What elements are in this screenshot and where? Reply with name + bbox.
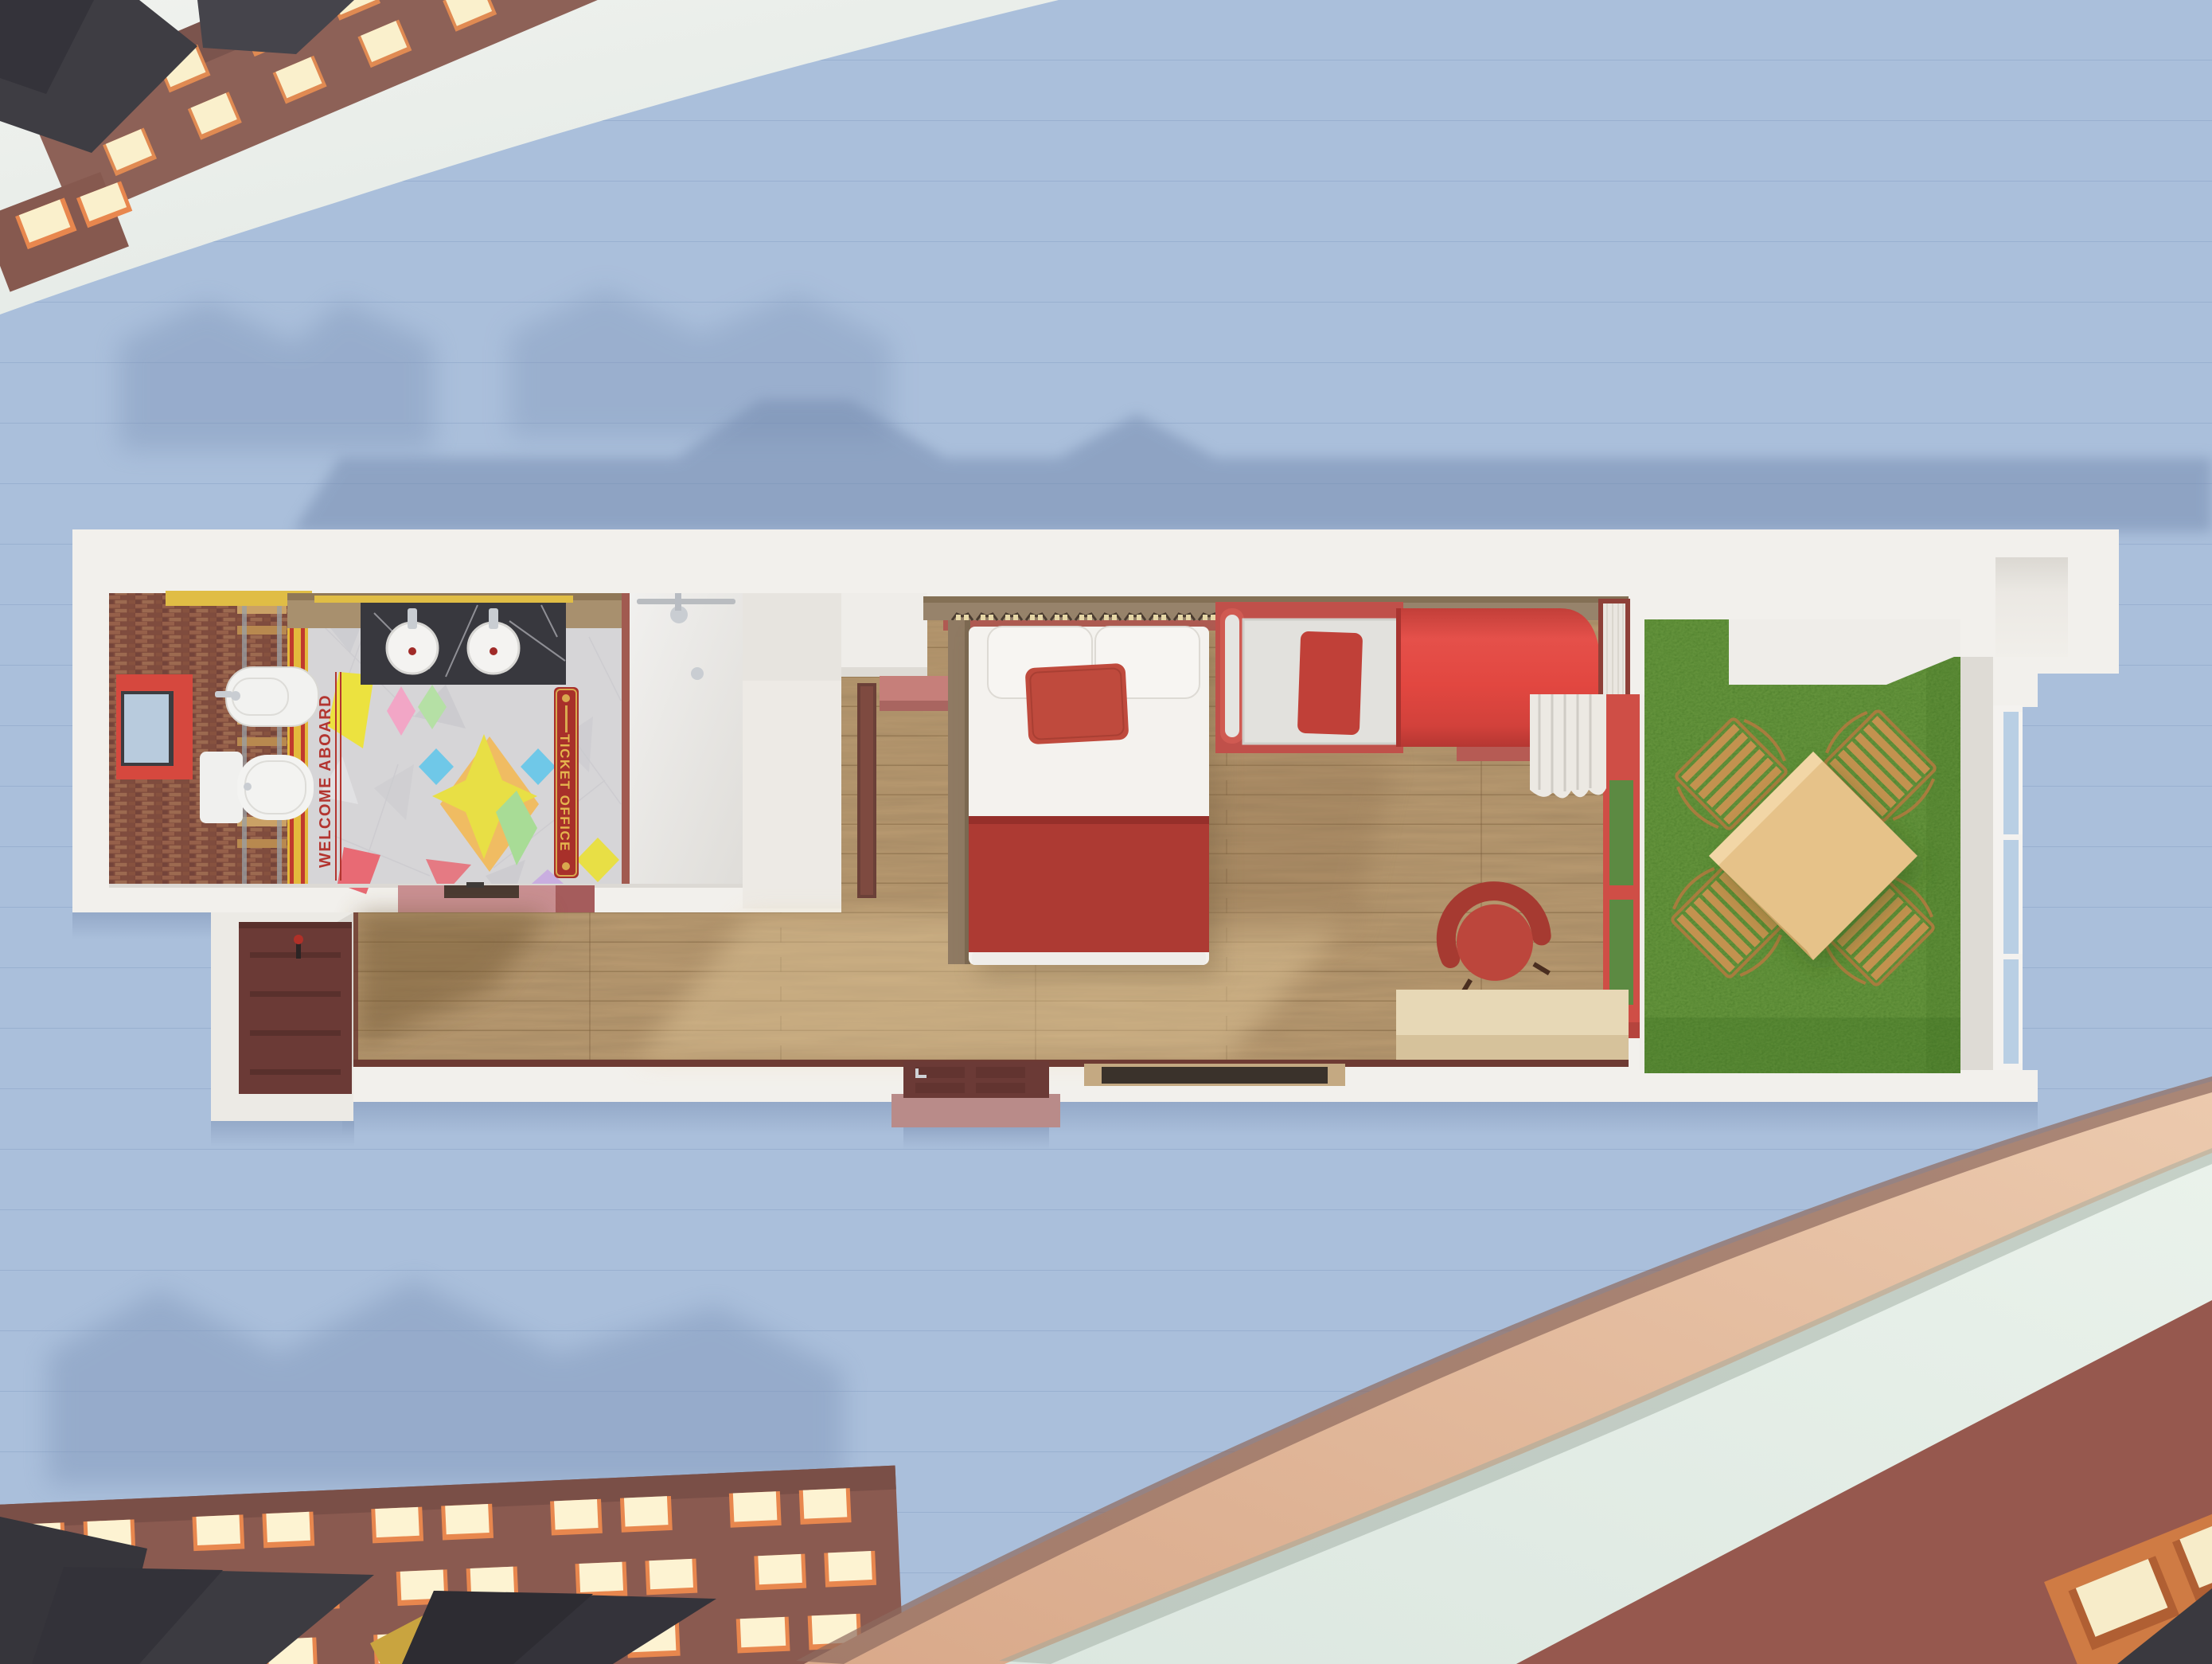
svg-text:WELCOME ABOARD: WELCOME ABOARD (317, 694, 334, 868)
svg-text:TICKET OFFICE: TICKET OFFICE (557, 734, 572, 852)
